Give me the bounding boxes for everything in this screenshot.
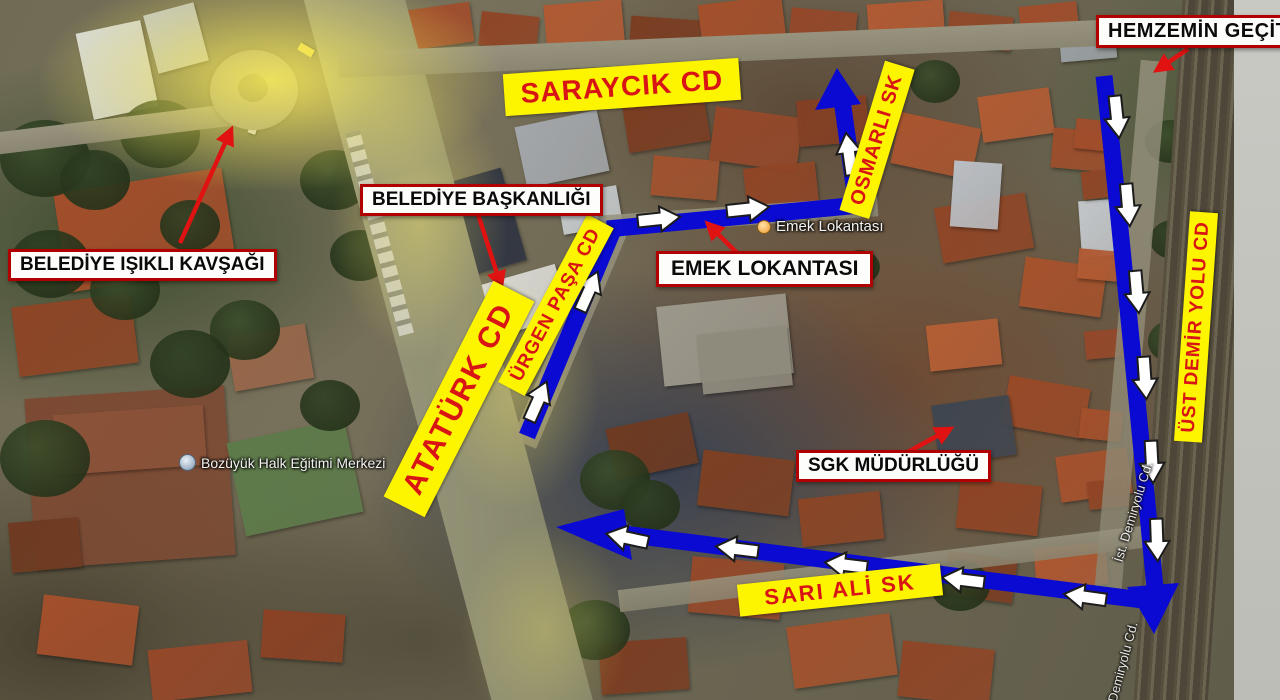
- callout-emek-lokantasi: EMEK LOKANTASI: [656, 251, 873, 287]
- satellite-map: Bozüyük Halk Eğitimi Merkezi Emek Lokant…: [0, 0, 1280, 700]
- callout-belediye-baskanligi: BELEDİYE BAŞKANLIĞI: [360, 184, 603, 216]
- pointer-belediye-baskanligi: [478, 214, 501, 286]
- pointer-isikli-kavsagi: [180, 130, 231, 243]
- poi-label-bozuyuk-hem: Bozüyük Halk Eğitimi Merkezi: [201, 455, 385, 471]
- callout-sgk-mudurlugu: SGK MÜDÜRLÜĞÜ: [796, 450, 991, 482]
- poi-icon-bozuyuk-hem: [179, 454, 196, 471]
- poi-icon-emek-lokantasi: [757, 220, 771, 234]
- pointer-hemzemin-gecit: [1157, 49, 1188, 70]
- callout-hemzemin-gecit: HEMZEMİN GEÇİT: [1096, 15, 1280, 48]
- poi-label-emek-lokantasi: Emek Lokantası: [776, 218, 884, 235]
- callout-belediye-isikli-kavsagi: BELEDİYE IŞIKLI KAVŞAĞI: [8, 249, 277, 281]
